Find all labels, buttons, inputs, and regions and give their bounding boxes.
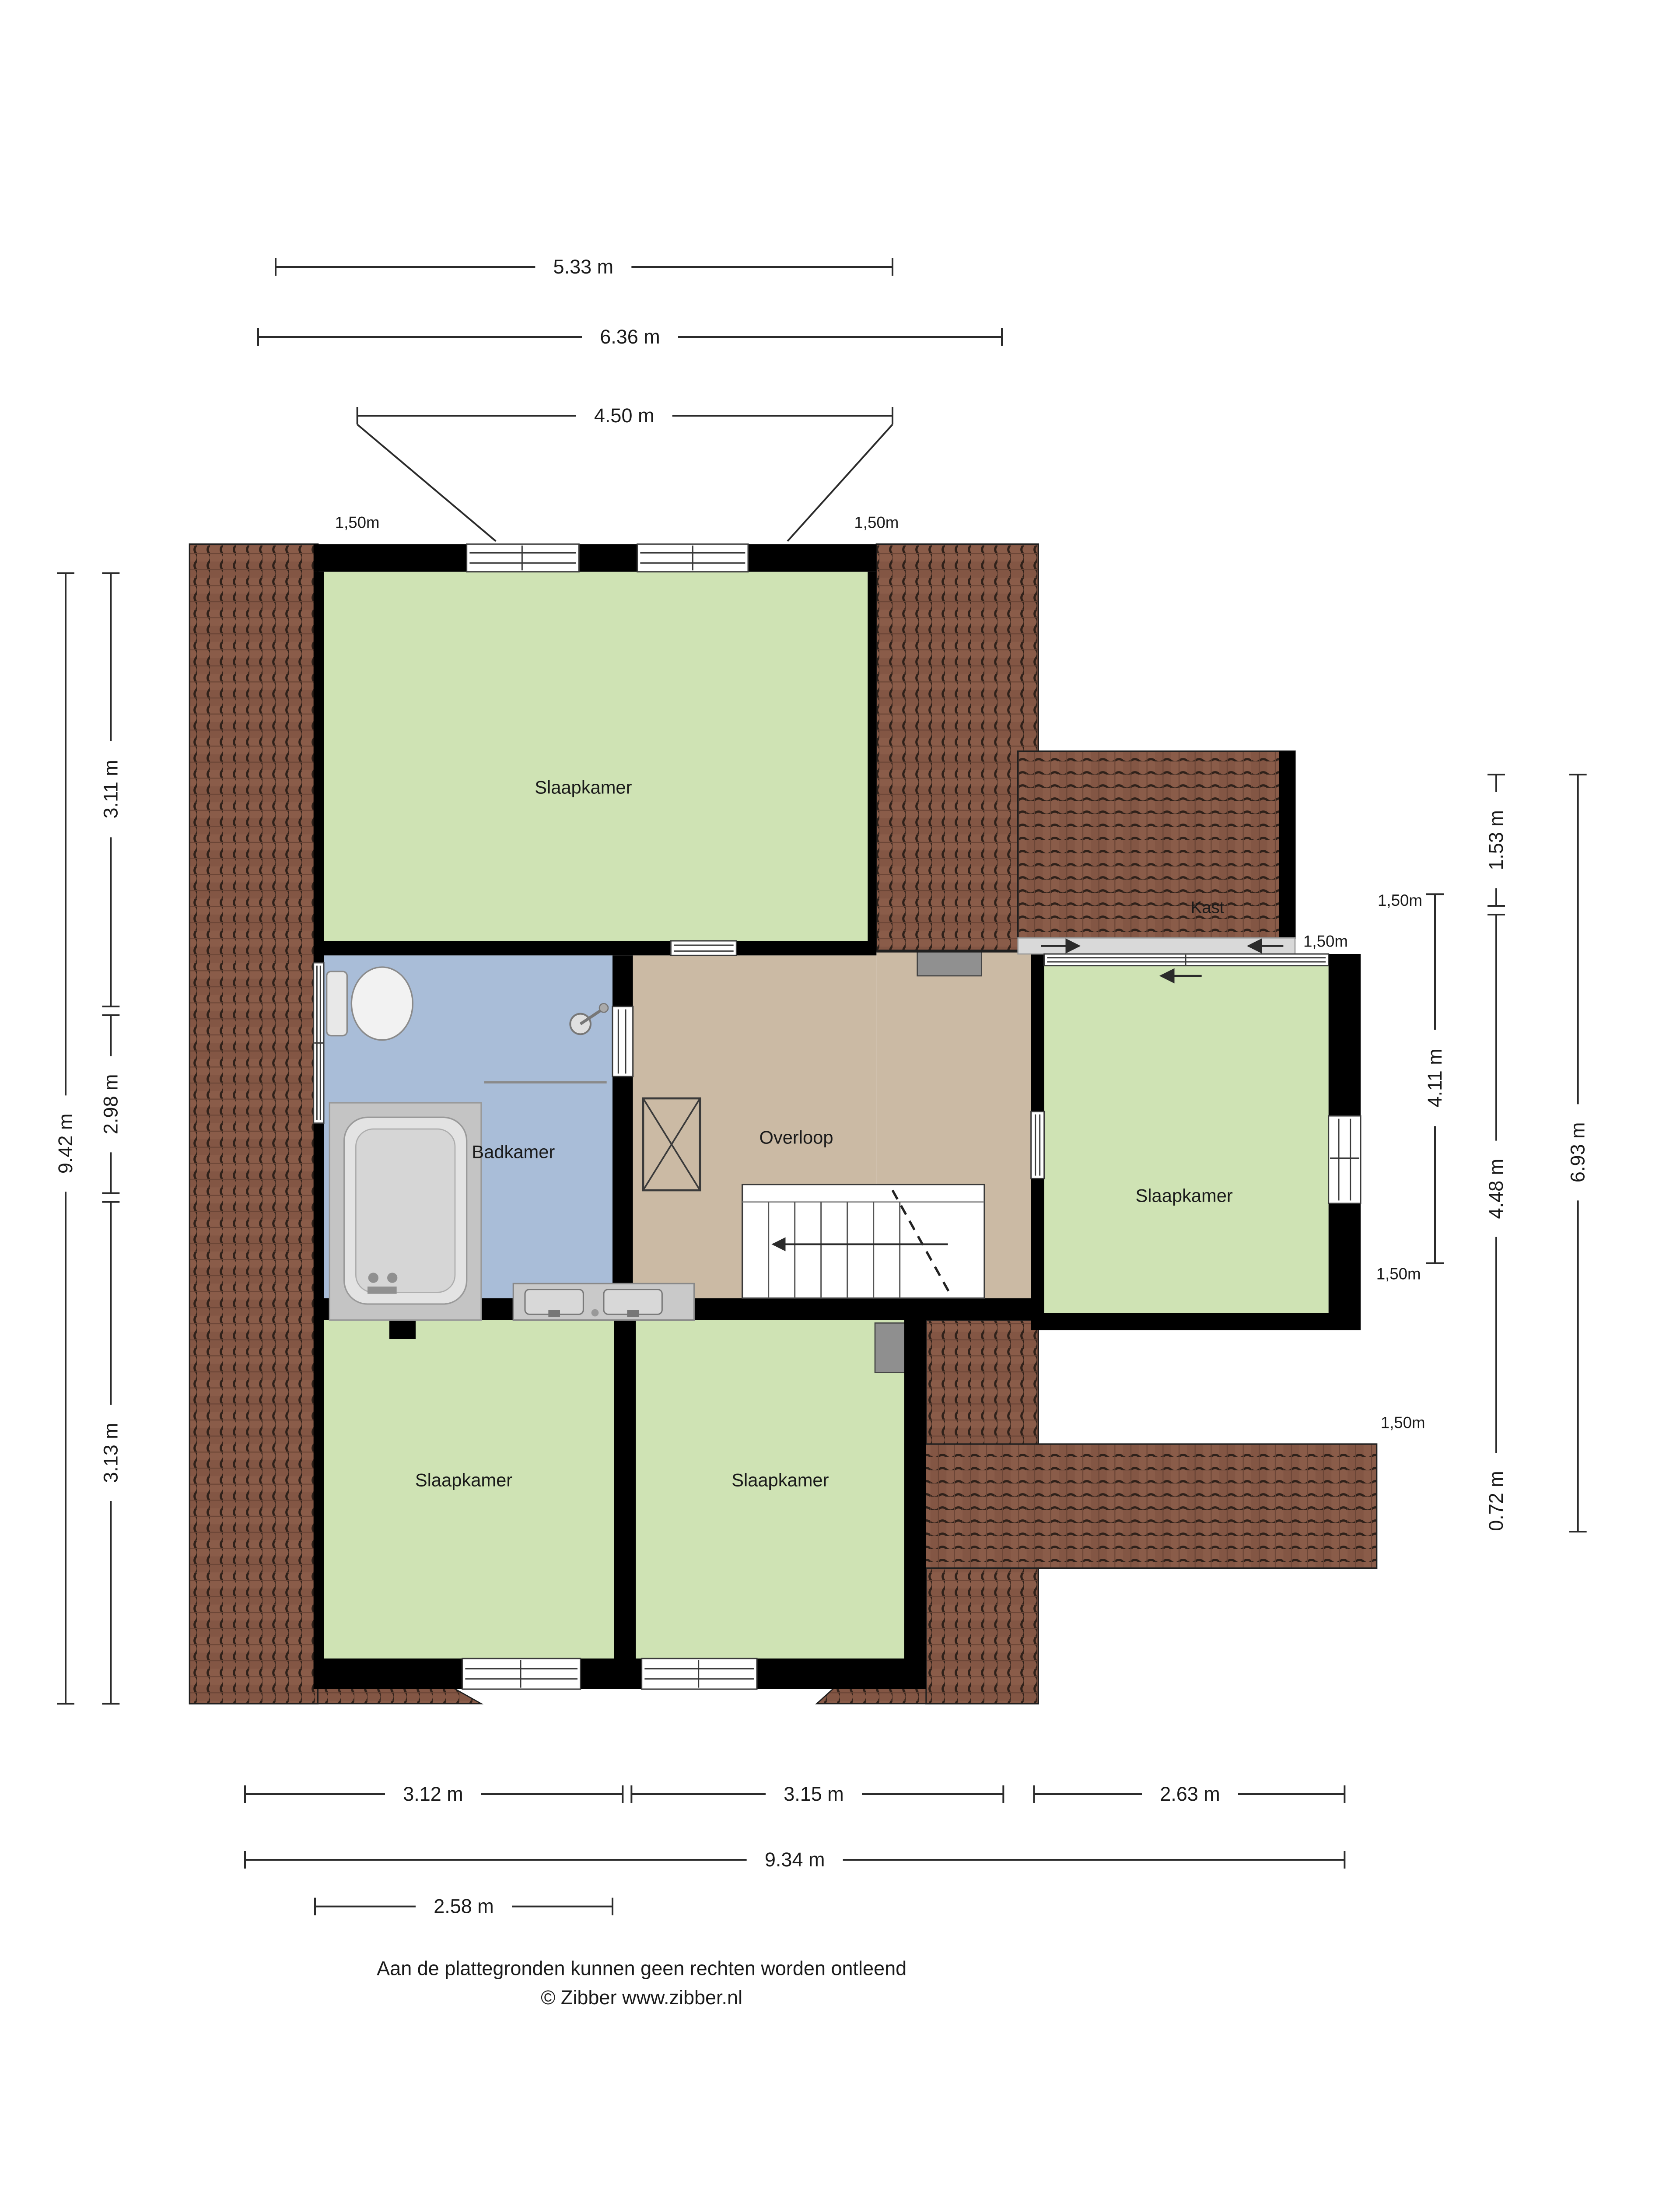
- closet-label: Kast: [1191, 898, 1225, 917]
- dim-bottom-s3-label: 2.63 m: [1160, 1783, 1220, 1805]
- dim-right-inner-4-11: 4.11 m: [1422, 894, 1448, 1263]
- wall-bottom: [314, 1659, 926, 1689]
- dim-right-inner-label: 4.11 m: [1424, 1048, 1446, 1107]
- dim-bottom-total-label: 9.34 m: [765, 1848, 825, 1871]
- headroom-top-right-label: 1,50m: [854, 514, 899, 532]
- duct-patch: [875, 1323, 907, 1372]
- toilet: [327, 967, 413, 1040]
- dim-left-s1-label: 3.11 m: [99, 760, 122, 818]
- bedroom-bottom-left-label: Slaapkamer: [415, 1470, 512, 1490]
- window-bottom-1: [462, 1659, 581, 1689]
- dim-bottom-room-label: 2.58 m: [434, 1895, 494, 1918]
- dim-right-segments: 1.53 m 4.48 m 0.72 m: [1483, 775, 1509, 1549]
- dim-left-total-label: 9.42 m: [54, 1114, 77, 1174]
- dim-top-6-36-label: 6.36 m: [600, 326, 660, 348]
- floorplan-page: Slaapkamer Badkamer Overloop Kast Slaapk…: [0, 0, 1680, 2188]
- landing-label: Overloop: [759, 1127, 833, 1147]
- bedroom-top-label: Slaapkamer: [535, 777, 632, 797]
- bedroom-bottom-middle-label: Slaapkamer: [731, 1470, 829, 1490]
- roof-closet-band: [1018, 751, 1295, 938]
- closet-sliding-doors: [1044, 954, 1329, 966]
- wall-bedroom-top-south: [324, 941, 876, 955]
- door-bedroom-top: [671, 941, 736, 955]
- dim-top-4-50: 4.50 m: [357, 403, 892, 541]
- dim-bottom-room-2-58: 2.58 m: [315, 1893, 612, 1920]
- wall-bottom-middle-right: [904, 1320, 926, 1659]
- wall-stub-bathroom: [389, 1320, 416, 1339]
- footer-copyright: © Zibber www.zibber.nl: [541, 1986, 742, 2009]
- bathtub: [329, 1103, 481, 1320]
- dim-top-6-36: 6.36 m: [258, 324, 1002, 350]
- bedroom-top-room: [324, 572, 868, 951]
- bathtub-faucet-icon: [368, 1273, 378, 1283]
- dim-top-5-33-label: 5.33 m: [553, 256, 614, 278]
- floorplan-canvas: Slaapkamer Badkamer Overloop Kast Slaapk…: [0, 0, 1680, 2188]
- bedroom-right-label: Slaapkamer: [1136, 1185, 1233, 1206]
- roof-right-wing-bottom-band: [875, 1444, 1377, 1568]
- dim-bottom-s1-label: 3.12 m: [403, 1783, 463, 1805]
- wall-bedroom-top-right: [868, 572, 876, 951]
- dim-bottom-s2-label: 3.15 m: [784, 1783, 844, 1805]
- dim-left-s3-label: 3.13 m: [99, 1423, 122, 1483]
- window-bathroom-left: [314, 963, 324, 1123]
- bathroom-label: Badkamer: [472, 1142, 555, 1162]
- headroom-top-left-label: 1,50m: [335, 514, 380, 532]
- dim-left-s2-label: 2.98 m: [99, 1074, 122, 1135]
- stairs: [742, 1185, 984, 1298]
- roof-top-right-wedge: [876, 544, 1038, 951]
- window-bottom-2: [642, 1659, 757, 1689]
- headroom-right-lower-label: 1,50m: [1376, 1265, 1421, 1283]
- door-bedroom-right: [1031, 1112, 1044, 1178]
- door-bathroom: [612, 1006, 633, 1076]
- dim-top-4-50-label: 4.50 m: [594, 404, 654, 427]
- dim-left-total-9-42: 9.42 m: [52, 573, 79, 1704]
- dim-right-total-label: 6.93 m: [1567, 1122, 1589, 1183]
- sink-tap-icon: [548, 1310, 560, 1317]
- bedroom-right-room: [1044, 954, 1329, 1313]
- roof-left-band: [189, 544, 318, 1704]
- dim-right-s1-label: 1.53 m: [1485, 810, 1507, 870]
- sink-tap-icon: [627, 1310, 639, 1317]
- headroom-right-edge-label: 1,50m: [1303, 932, 1348, 950]
- dim-right-s2-label: 4.48 m: [1485, 1159, 1507, 1219]
- dim-bottom-total-9-34: 9.34 m: [245, 1847, 1344, 1873]
- wall-left: [314, 572, 324, 1689]
- window-top-1: [467, 544, 579, 572]
- headroom-right-upper-label: 1,50m: [1378, 891, 1422, 909]
- dim-top-5-33: 5.33 m: [276, 254, 892, 280]
- wall-bedroom-right-south: [1031, 1313, 1361, 1330]
- wall-closet-east: [1279, 751, 1295, 954]
- wall-bottom-rooms-divider: [614, 1320, 636, 1659]
- dim-right-total-6-93: 6.93 m: [1565, 775, 1591, 1532]
- vanity-double-sink: [513, 1283, 694, 1320]
- dim-right-s3-label: 0.72 m: [1485, 1471, 1507, 1531]
- dim-left-segments: 3.11 m 2.98 m 3.13 m: [98, 573, 124, 1704]
- dim-bottom-segments: 3.12 m 3.15 m 2.63 m: [245, 1781, 1344, 1807]
- footer-disclaimer: Aan de plattegronden kunnen geen rechten…: [377, 1957, 906, 1979]
- window-bedroom-right: [1329, 1116, 1361, 1203]
- window-top-2: [637, 544, 748, 572]
- dormer-flat-roof-patch: [917, 951, 982, 976]
- headroom-right-bottom-label: 1,50m: [1381, 1413, 1425, 1431]
- wall-top: [314, 544, 877, 572]
